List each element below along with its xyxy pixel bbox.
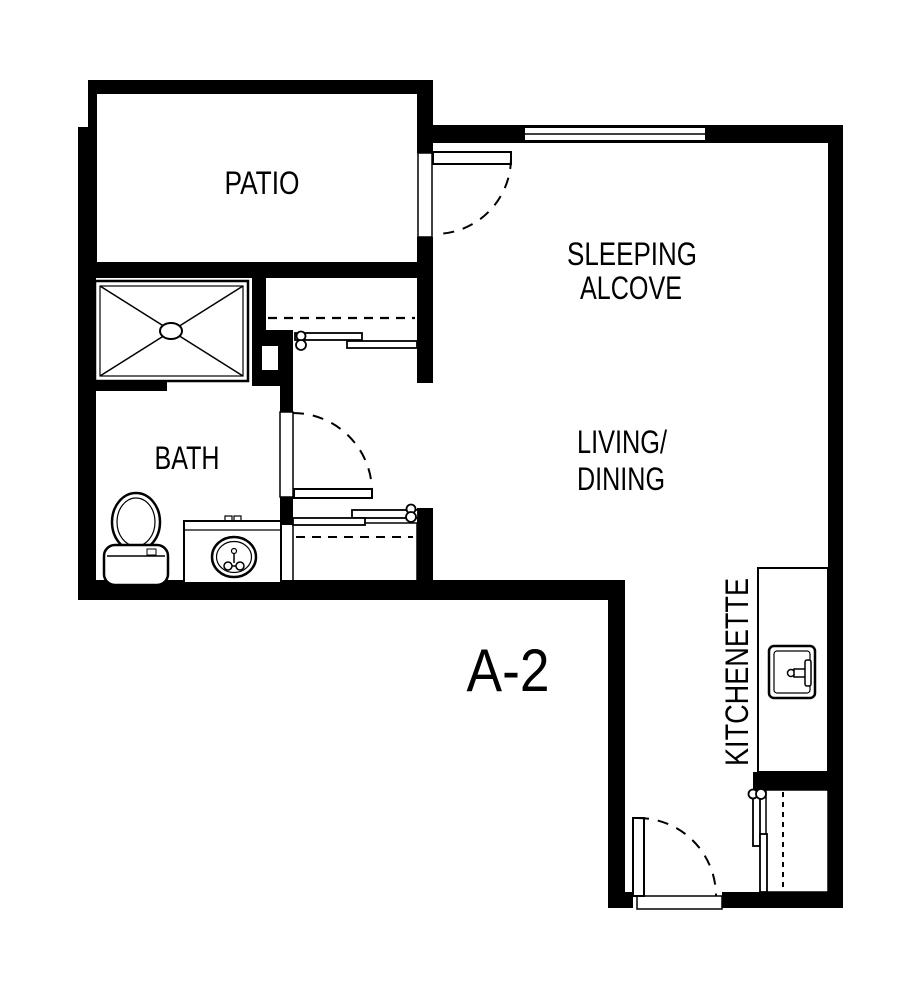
- entry-closet-door-pull-2: [756, 789, 766, 799]
- upper-closet-door-panel-2: [347, 341, 417, 348]
- kitchen-sink-fixture: [769, 646, 815, 698]
- kitchen-sink-faucet-handle: [805, 660, 811, 686]
- bath-door-leaf: [294, 489, 372, 498]
- shower-drain: [160, 323, 182, 339]
- lower-closet-box: [293, 523, 417, 582]
- wall-hall-stub-upper: [280, 386, 293, 412]
- wall-patio-top: [88, 80, 433, 94]
- wall-patio-right-upper: [417, 94, 433, 153]
- wall-divider-lower: [417, 508, 433, 583]
- bath-label: BATH: [155, 440, 220, 476]
- patio-door: [418, 152, 511, 237]
- toilet-fixture: [104, 493, 168, 585]
- bath-door-swing-arc: [293, 413, 372, 492]
- sleeping-alcove-label-line2: ALCOVE: [580, 270, 682, 306]
- patio-door-leaf: [433, 152, 511, 164]
- entry-door-threshold: [637, 896, 722, 909]
- entry-closet: [749, 789, 829, 892]
- patio-door-jamb: [418, 153, 432, 237]
- room-labels: PATIO SLEEPING ALCOVE LIVING/ DINING BAT…: [155, 165, 756, 766]
- wall-step-vertical: [608, 580, 625, 908]
- wall-divider-upper: [417, 237, 433, 383]
- wall-kitchenette-stub: [753, 772, 843, 790]
- entry-door: [633, 818, 722, 909]
- vanity-sink-fixture: [184, 516, 281, 583]
- patio-door-swing-arc: [435, 158, 511, 234]
- unit-label: A-2: [467, 637, 550, 704]
- bath-door: [280, 412, 372, 498]
- bath-door-jamb: [280, 412, 293, 497]
- vanity-handle-left: [224, 562, 232, 570]
- wall-patio-bottom: [78, 262, 433, 278]
- vanity-drain: [232, 549, 237, 554]
- wall-shower-curb: [90, 381, 167, 391]
- wall-outer-right: [828, 125, 843, 908]
- kitchenette-label: KITCHENETTE: [719, 578, 755, 766]
- living-dining-label-line2: DINING: [577, 461, 665, 497]
- floor-plan-drawing: PATIO SLEEPING ALCOVE LIVING/ DINING BAT…: [0, 0, 923, 998]
- entry-closet-door-panel-2: [760, 834, 767, 892]
- entry-door-leaf: [633, 818, 644, 896]
- toilet-tank: [104, 545, 168, 585]
- lower-closet: [293, 505, 418, 583]
- floor-plan-page: PATIO SLEEPING ALCOVE LIVING/ DINING BAT…: [0, 0, 923, 998]
- lower-closet-door-pull-2: [406, 512, 416, 522]
- toilet-bowl-outer: [112, 493, 160, 551]
- patio-label: PATIO: [225, 165, 300, 201]
- shower-fixture: [95, 281, 248, 381]
- toilet-flush-button: [147, 549, 156, 555]
- walls: [78, 80, 843, 908]
- upper-closet-door-pull-2: [296, 340, 306, 350]
- alcove-window: [525, 128, 705, 140]
- wall-outer-left: [78, 127, 96, 600]
- living-dining-label-line1: LIVING/: [577, 424, 667, 460]
- lower-closet-door-panel-2: [293, 518, 365, 525]
- entry-closet-box: [766, 790, 828, 892]
- sleeping-alcove-label-line1: SLEEPING: [567, 236, 697, 272]
- vanity-handle-right: [236, 562, 244, 570]
- wall-niche: [262, 346, 278, 370]
- entry-door-swing-arc: [638, 818, 716, 896]
